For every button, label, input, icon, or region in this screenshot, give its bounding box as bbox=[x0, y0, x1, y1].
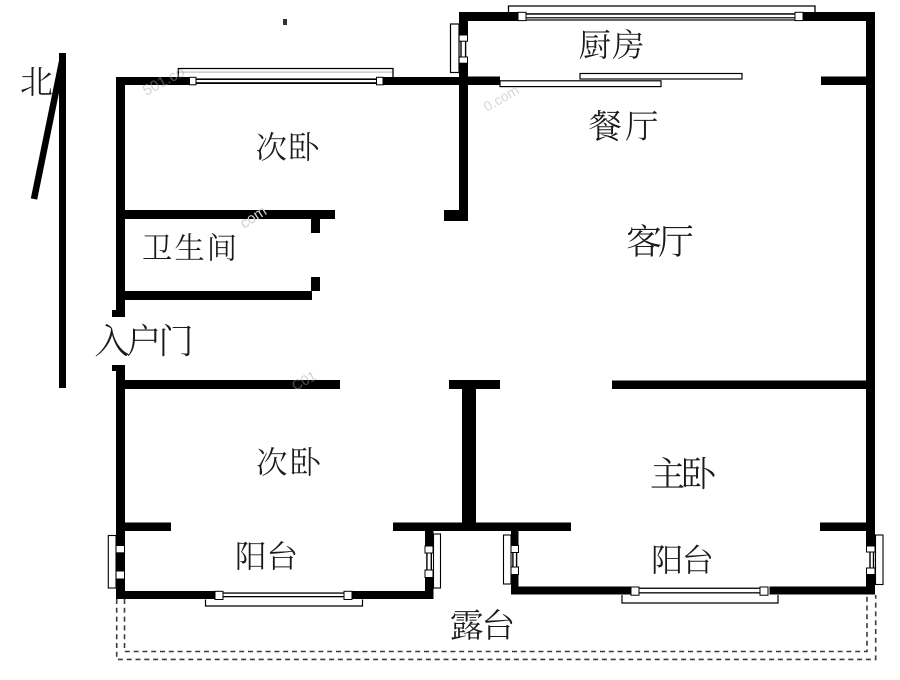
svg-text:501.co: 501.co bbox=[140, 63, 188, 99]
svg-text:com: com bbox=[237, 203, 270, 233]
svg-text:C01: C01 bbox=[289, 367, 319, 393]
